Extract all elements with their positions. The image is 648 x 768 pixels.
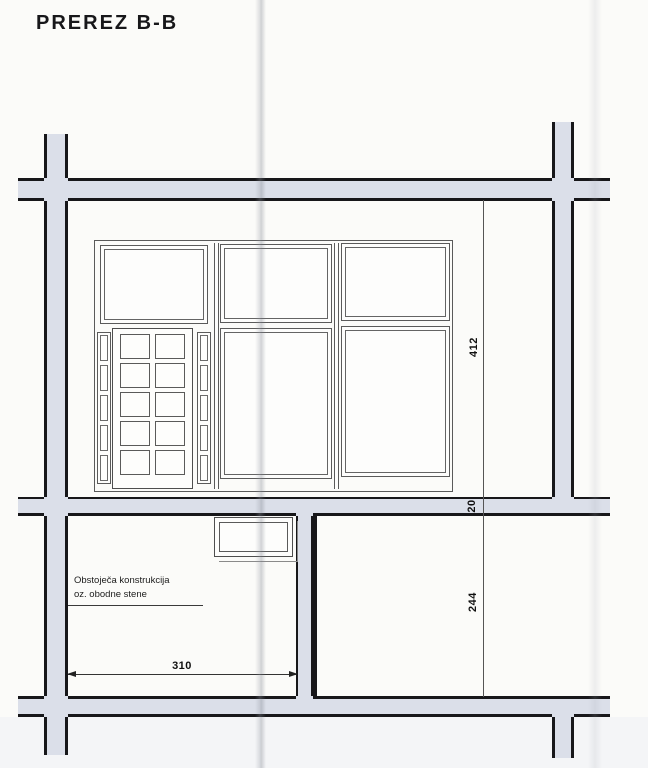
window-pane-top-left xyxy=(100,245,208,324)
note-line-2: oz. obodne stene xyxy=(74,588,170,602)
door-glass-pane xyxy=(120,450,150,475)
wall-column-left xyxy=(44,134,68,755)
wall-column-middle xyxy=(296,516,313,696)
sidelight-pane xyxy=(200,425,208,451)
window-pane-right-bottom xyxy=(341,326,450,477)
sidelight-pane xyxy=(100,425,108,451)
dimension-arrow-right xyxy=(289,671,298,677)
dimension-label-310: 310 xyxy=(162,659,202,673)
glass xyxy=(345,330,446,473)
room-wall-edge-line xyxy=(313,516,317,696)
door-glass-pane xyxy=(120,421,150,446)
door-glass-pane xyxy=(155,392,185,417)
glass xyxy=(345,247,446,317)
dimension-arrow-left xyxy=(67,671,76,677)
door-sidelight-left xyxy=(97,332,111,484)
door-glass-pane xyxy=(120,334,150,359)
door-sidelight-right xyxy=(197,332,211,484)
wall-band-top xyxy=(18,178,610,201)
wall-junction xyxy=(44,178,68,201)
door-glass-pane xyxy=(120,363,150,388)
window-elevation xyxy=(94,240,453,492)
window-mullion xyxy=(334,243,339,489)
small-lower-window xyxy=(214,517,293,557)
note-line-1: Obstoječa konstrukcija xyxy=(74,574,170,588)
wall-junction xyxy=(44,696,68,717)
dimension-label-20: 20 xyxy=(465,486,479,526)
dimension-label-244: 244 xyxy=(466,582,480,622)
paper-bottom-shading xyxy=(0,717,648,768)
window-mullion xyxy=(214,243,219,489)
door-glass-pane xyxy=(155,421,185,446)
sidelight-pane xyxy=(200,395,208,421)
note-underline-leader xyxy=(68,605,203,606)
sidelight-pane xyxy=(200,365,208,391)
sidelight-pane xyxy=(100,395,108,421)
wall-band-bottom xyxy=(18,696,610,717)
paper-fold-crease-faint xyxy=(588,0,602,768)
vertical-dimension-line xyxy=(483,200,484,697)
wall-junction xyxy=(552,714,574,717)
glazed-door xyxy=(112,328,193,489)
door-glass-pane xyxy=(155,363,185,388)
door-glass-pane xyxy=(120,392,150,417)
door-glass-pane xyxy=(155,334,185,359)
dimension-label-412: 412 xyxy=(467,327,481,367)
wall-band-middle xyxy=(18,497,610,516)
glass xyxy=(219,522,288,552)
sidelight-pane xyxy=(100,335,108,361)
glass xyxy=(104,249,204,320)
wall-junction xyxy=(296,513,313,516)
horizontal-dimension-line xyxy=(67,674,298,675)
window-pane-right-top xyxy=(341,243,450,321)
sidelight-pane xyxy=(100,455,108,481)
window-pane-center-top xyxy=(220,244,332,323)
glass xyxy=(224,248,328,319)
window-pane-center-bottom xyxy=(220,328,332,479)
sidelight-pane xyxy=(200,335,208,361)
construction-note: Obstoječa konstrukcija oz. obodne stene xyxy=(74,574,170,602)
wall-junction xyxy=(552,178,574,201)
wall-junction xyxy=(552,497,574,500)
wall-junction xyxy=(296,696,313,699)
sidelight-pane xyxy=(200,455,208,481)
scanned-drawing-sheet: PREREZ B-B xyxy=(0,0,648,768)
door-glass-pane xyxy=(155,450,185,475)
glass xyxy=(224,332,328,475)
wall-junction xyxy=(44,497,68,516)
sidelight-pane xyxy=(100,365,108,391)
drawing-title: PREREZ B-B xyxy=(36,12,178,35)
wall-column-right-lower xyxy=(552,717,574,758)
